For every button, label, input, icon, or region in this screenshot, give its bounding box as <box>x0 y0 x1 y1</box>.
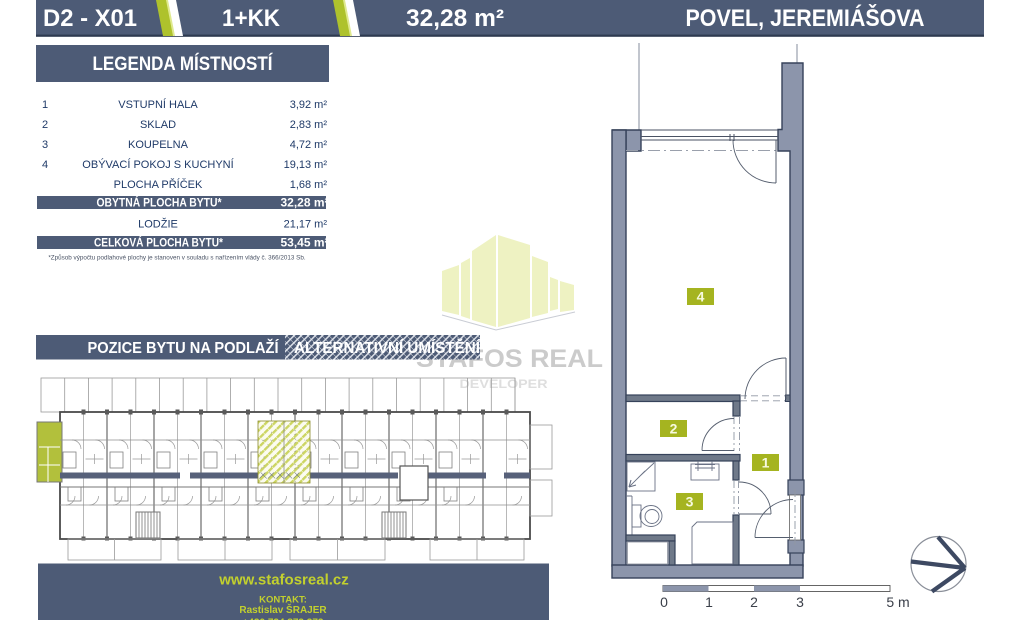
svg-text:CELKOVÁ PLOCHA BYTU*: CELKOVÁ PLOCHA BYTU* <box>94 235 223 250</box>
svg-text:1: 1 <box>762 455 770 471</box>
svg-text:19,13 m²: 19,13 m² <box>284 159 328 171</box>
svg-text:3: 3 <box>42 139 48 151</box>
svg-text:2: 2 <box>750 594 758 610</box>
svg-text:3: 3 <box>796 594 804 610</box>
svg-text:53,45 m²: 53,45 m² <box>280 236 328 250</box>
svg-text:4: 4 <box>42 159 48 171</box>
svg-text:KONTAKT:: KONTAKT: <box>259 595 307 606</box>
svg-text:OBÝVACÍ POKOJ S KUCHYNÍ: OBÝVACÍ POKOJ S KUCHYNÍ <box>82 158 234 171</box>
svg-text:5 m: 5 m <box>886 594 909 610</box>
svg-text:32,28 m²: 32,28 m² <box>406 5 504 32</box>
svg-text:DEVELOPER: DEVELOPER <box>460 377 548 391</box>
svg-text:D2 - X01: D2 - X01 <box>43 5 137 32</box>
svg-text:Rastislav ŠRAJER: Rastislav ŠRAJER <box>239 603 327 616</box>
svg-text:1,68 m²: 1,68 m² <box>290 179 328 191</box>
svg-text:POVEL, JEREMIÁŠOVA: POVEL, JEREMIÁŠOVA <box>686 4 925 32</box>
svg-text:SKLAD: SKLAD <box>140 119 176 131</box>
svg-text:3,92 m²: 3,92 m² <box>290 99 328 111</box>
svg-text:0: 0 <box>660 594 668 610</box>
svg-text:1: 1 <box>42 99 48 111</box>
svg-text:2,83 m²: 2,83 m² <box>290 119 328 131</box>
svg-text:21,17 m²: 21,17 m² <box>284 219 328 231</box>
svg-text:2: 2 <box>670 421 678 437</box>
svg-text:KOUPELNA: KOUPELNA <box>128 139 189 151</box>
svg-text:*Způsob výpočtu podlahové ploc: *Způsob výpočtu podlahové plochy je stan… <box>48 254 306 262</box>
svg-text:VSTUPNÍ HALA: VSTUPNÍ HALA <box>118 98 198 111</box>
svg-text:LODŽIE: LODŽIE <box>138 218 178 231</box>
svg-text:OBYTNÁ PLOCHA BYTU*: OBYTNÁ PLOCHA BYTU* <box>97 195 222 210</box>
svg-text:www.stafosreal.cz: www.stafosreal.cz <box>218 572 349 589</box>
svg-text:POZICE BYTU NA PODLAŽÍ: POZICE BYTU NA PODLAŽÍ <box>88 338 280 357</box>
svg-text:4: 4 <box>697 289 705 305</box>
svg-text:LEGENDA MÍSTNOSTÍ: LEGENDA MÍSTNOSTÍ <box>93 53 274 75</box>
svg-text:1: 1 <box>705 594 713 610</box>
svg-text:4,72 m²: 4,72 m² <box>290 139 328 151</box>
svg-text:32,28 m²: 32,28 m² <box>280 196 328 210</box>
svg-text:PLOCHA PŘÍČEK: PLOCHA PŘÍČEK <box>114 178 203 191</box>
svg-text:ALTERNATIVNÍ UMÍSTĚNÍ: ALTERNATIVNÍ UMÍSTĚNÍ <box>294 338 481 357</box>
svg-text:3: 3 <box>686 494 694 510</box>
svg-text:2: 2 <box>42 119 48 131</box>
svg-text:1+KK: 1+KK <box>222 5 281 32</box>
